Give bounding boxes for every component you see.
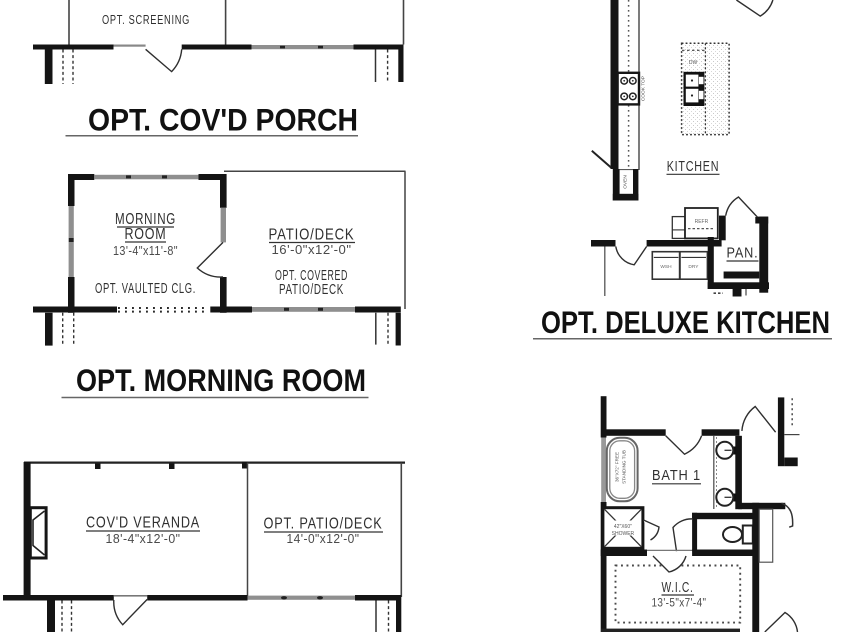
svg-text:COOK TOP: COOK TOP <box>641 76 647 101</box>
svg-text:16'-0"x12'-0": 16'-0"x12'-0" <box>272 242 352 257</box>
svg-text:PATIO/DECK: PATIO/DECK <box>279 282 344 298</box>
svg-text:OPT. SCREENING: OPT. SCREENING <box>102 12 190 27</box>
svg-text:OPT. DELUXE KITCHEN: OPT. DELUXE KITCHEN <box>541 304 830 340</box>
svg-text:WSH: WSH <box>660 264 672 270</box>
svg-text:OPT. PATIO/DECK: OPT. PATIO/DECK <box>264 516 383 533</box>
svg-text:W.I.C.: W.I.C. <box>662 579 694 596</box>
svg-text:13'-5"x7'-4": 13'-5"x7'-4" <box>652 596 707 610</box>
svg-text:OPT. MORNING ROOM: OPT. MORNING ROOM <box>76 362 366 398</box>
svg-text:18'-4"x12'-0": 18'-4"x12'-0" <box>106 531 181 546</box>
svg-text:STANDING TUB: STANDING TUB <box>622 450 627 484</box>
svg-text:DRY: DRY <box>688 264 699 270</box>
svg-text:PAN.: PAN. <box>727 245 759 262</box>
svg-text:OPT. VAULTED CLG.: OPT. VAULTED CLG. <box>95 281 196 297</box>
svg-text:42"X60": 42"X60" <box>614 524 632 530</box>
svg-text:ROOM: ROOM <box>125 226 167 243</box>
svg-text:KITCHEN: KITCHEN <box>667 159 720 175</box>
svg-text:OPT. COV'D PORCH: OPT. COV'D PORCH <box>88 102 358 138</box>
svg-text:PATIO/DECK: PATIO/DECK <box>269 227 355 244</box>
svg-text:REFR: REFR <box>695 219 709 225</box>
svg-text:BATH 1: BATH 1 <box>652 467 701 484</box>
svg-text:13'-4"x11'-8": 13'-4"x11'-8" <box>113 243 178 258</box>
svg-text:14'-0"x12'-0": 14'-0"x12'-0" <box>287 531 360 546</box>
svg-text:SHOWER: SHOWER <box>612 531 635 537</box>
svg-text:DW: DW <box>689 60 698 66</box>
svg-text:OVEN: OVEN <box>622 175 628 189</box>
svg-text:COV'D VERANDA: COV'D VERANDA <box>86 515 200 532</box>
svg-text:36"X72" FREE: 36"X72" FREE <box>615 452 620 482</box>
